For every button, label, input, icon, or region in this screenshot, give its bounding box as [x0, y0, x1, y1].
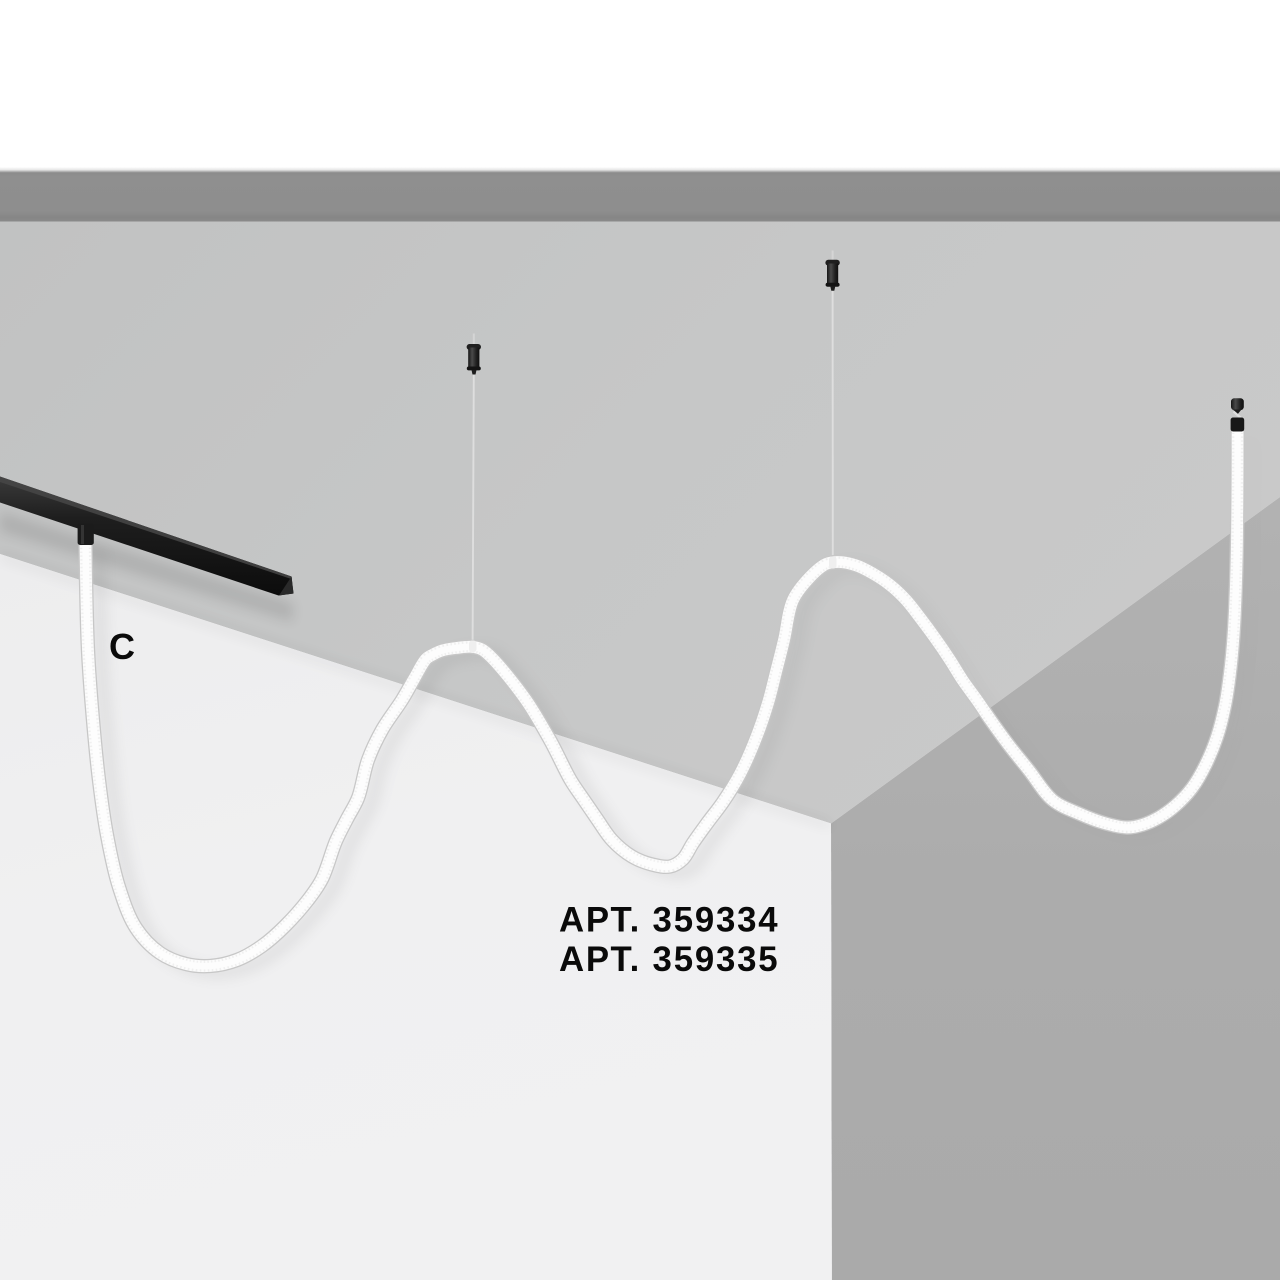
svg-text:АРТ. 359335: АРТ. 359335: [559, 940, 779, 979]
svg-text:АРТ. 359334: АРТ. 359334: [559, 901, 779, 940]
svg-text:C: C: [109, 626, 135, 667]
